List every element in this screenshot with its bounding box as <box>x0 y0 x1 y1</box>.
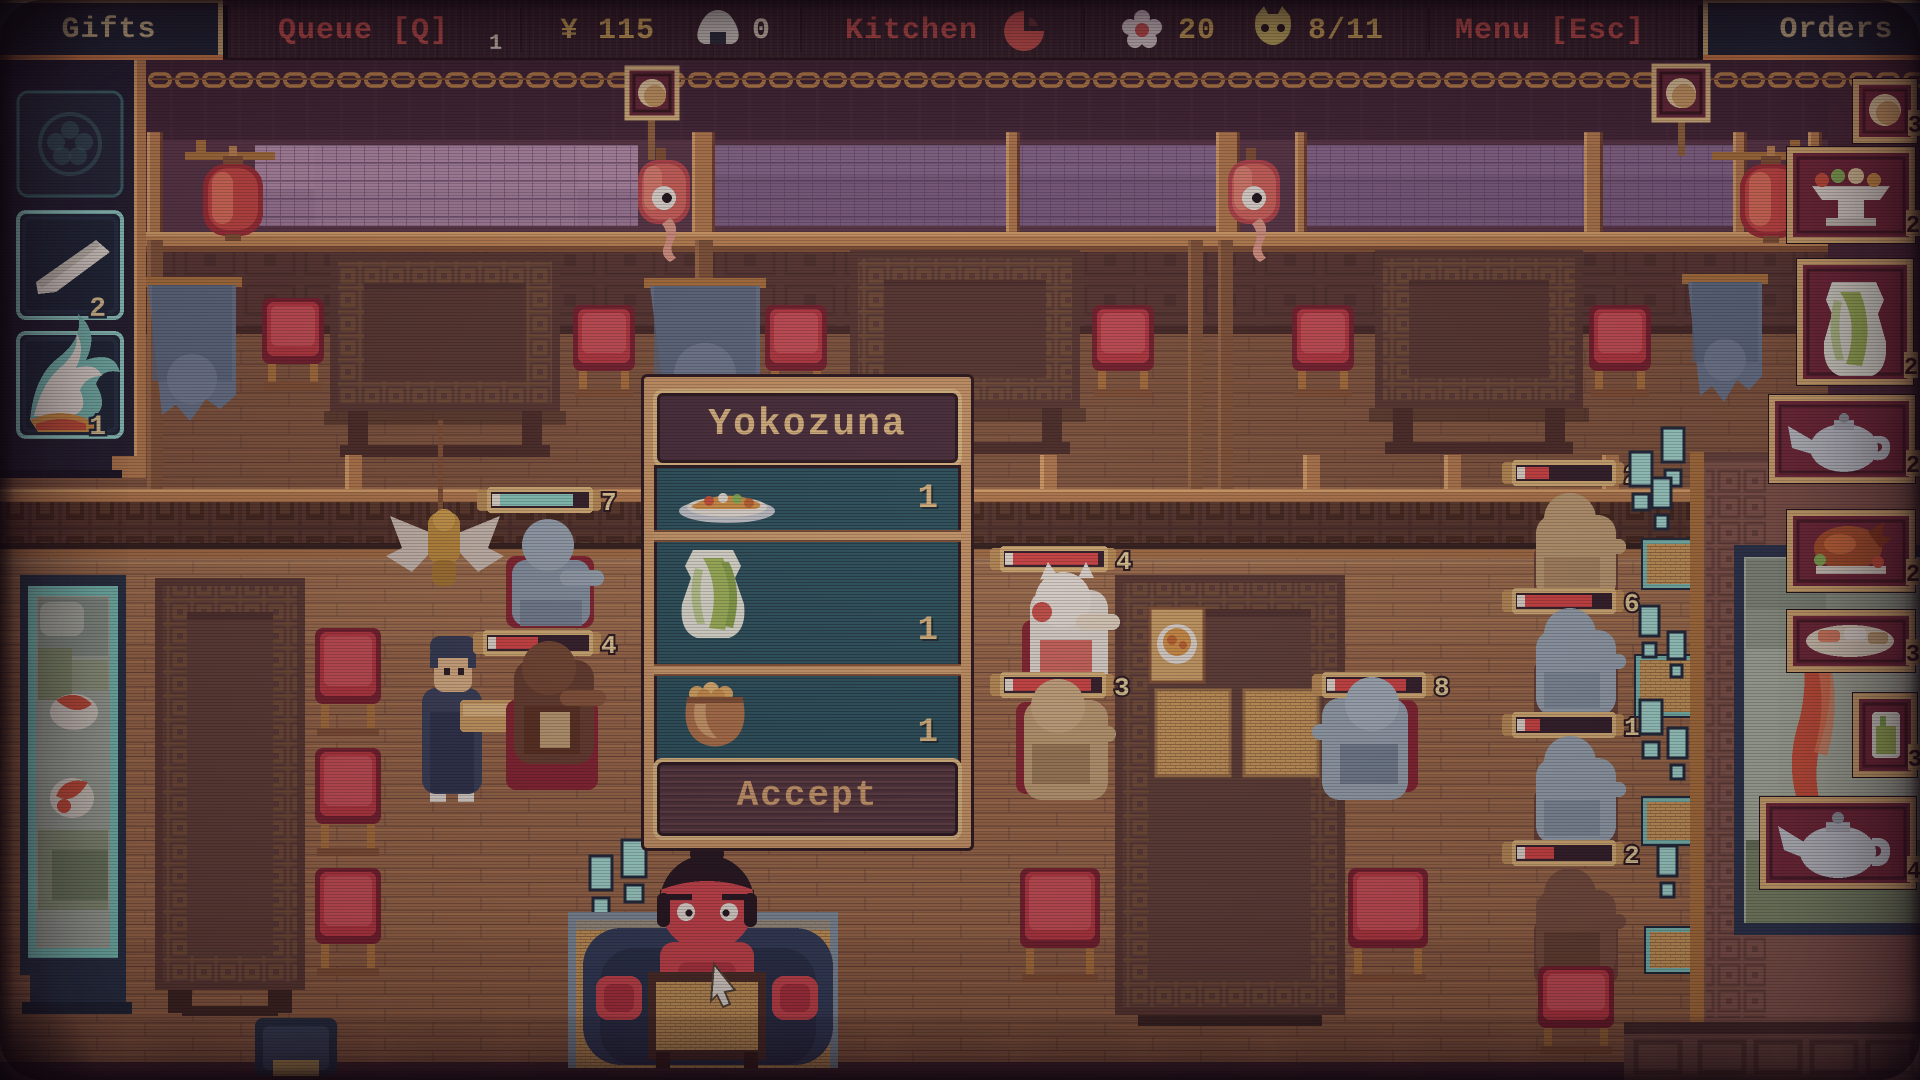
svg-text:2: 2 <box>1904 355 1918 382</box>
svg-text:3: 3 <box>1908 747 1920 774</box>
svg-text:3: 3 <box>1908 113 1920 140</box>
svg-text:4: 4 <box>1116 547 1132 577</box>
svg-text:6: 6 <box>1624 589 1640 619</box>
svg-text:2: 2 <box>1906 562 1920 589</box>
svg-text:2: 2 <box>1906 213 1920 240</box>
svg-text:8: 8 <box>1434 673 1450 703</box>
svg-text:4: 4 <box>1907 859 1920 886</box>
svg-text:3: 3 <box>1114 673 1130 703</box>
svg-text:7: 7 <box>601 488 617 518</box>
svg-text:1: 1 <box>89 412 106 443</box>
svg-text:2: 2 <box>1906 453 1920 480</box>
svg-text:4: 4 <box>601 631 617 661</box>
svg-text:2: 2 <box>89 294 106 325</box>
svg-text:3: 3 <box>1906 642 1920 669</box>
svg-text:2: 2 <box>1624 841 1640 871</box>
